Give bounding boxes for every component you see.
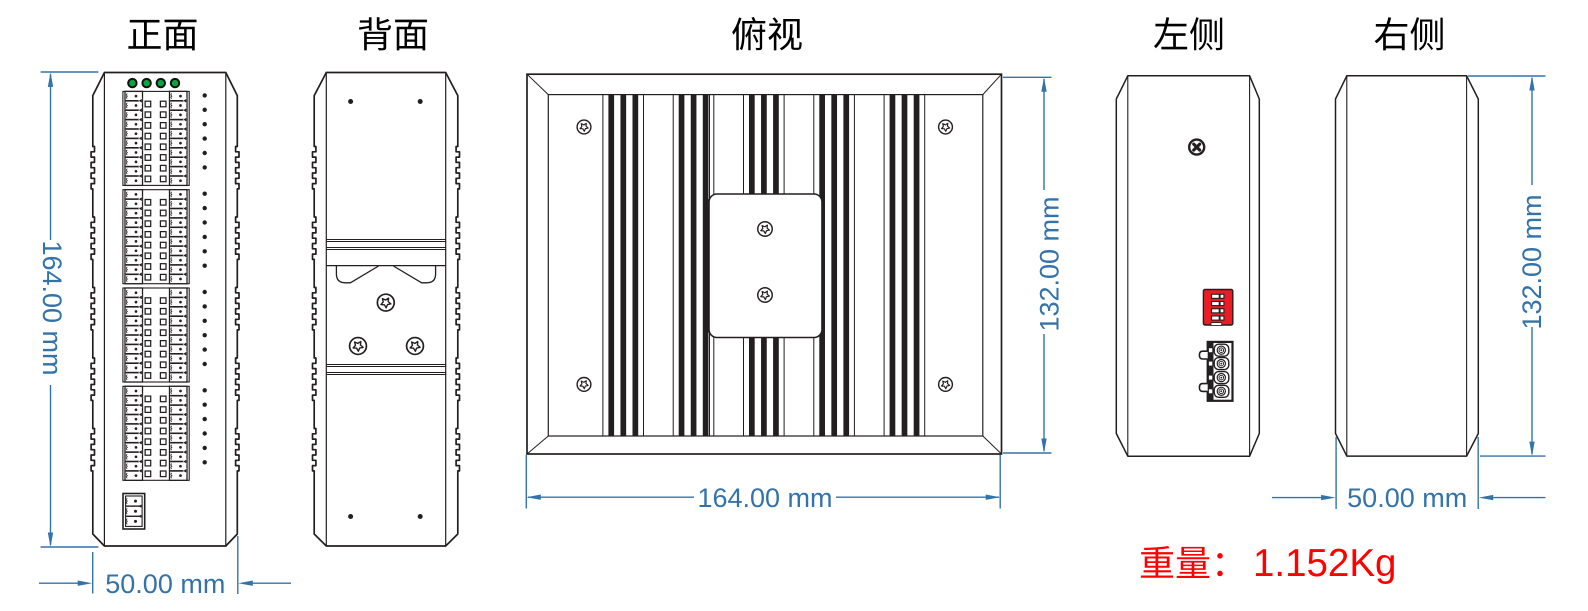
svg-text:132.00 mm: 132.00 mm [1035,196,1065,331]
svg-text:1.152Kg: 1.152Kg [1253,542,1396,585]
svg-text:50.00 mm: 50.00 mm [105,569,225,599]
svg-text:50.00 mm: 50.00 mm [1347,483,1467,513]
svg-text:164.00 mm: 164.00 mm [37,240,67,375]
svg-text:132.00 mm: 132.00 mm [1517,194,1547,329]
svg-text:164.00 mm: 164.00 mm [697,483,832,513]
